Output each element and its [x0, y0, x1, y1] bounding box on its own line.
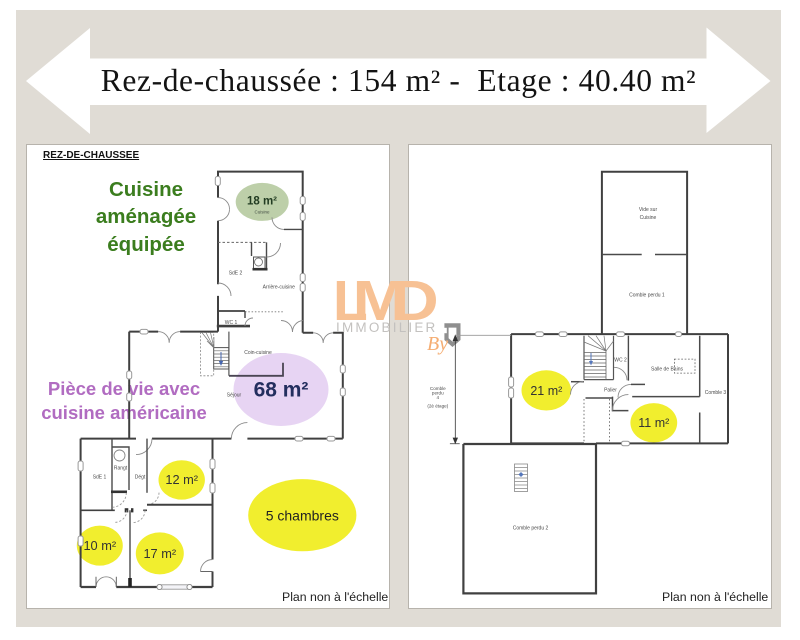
svg-text:11 m²: 11 m² — [638, 416, 669, 430]
svg-text:Comble 3: Comble 3 — [705, 390, 727, 396]
svg-text:Comble perdu 2: Comble perdu 2 — [513, 526, 549, 532]
svg-text:Salle de Bains: Salle de Bains — [651, 367, 683, 373]
svg-text:Vide sur: Vide sur — [639, 207, 658, 213]
svg-text:Cuisine: Cuisine — [640, 215, 657, 221]
svg-text:Palier: Palier — [604, 388, 617, 394]
svg-text:(2è étage): (2è étage) — [427, 404, 448, 409]
svg-text:21 m²: 21 m² — [530, 384, 562, 398]
svg-text:WC 2: WC 2 — [614, 358, 627, 364]
svg-text:4: 4 — [437, 395, 440, 400]
svg-text:Comble perdu 1: Comble perdu 1 — [629, 293, 665, 299]
